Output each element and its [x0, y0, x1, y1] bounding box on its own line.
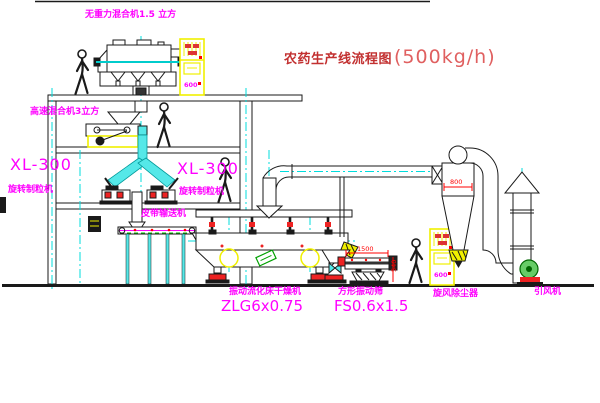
- label-dryer-model: ZLG6x0.75: [221, 299, 303, 314]
- title-capacity: (500kg/h): [394, 46, 496, 68]
- label-dryer-name: 振动流化床干燥机: [229, 288, 301, 297]
- screen-length-dim: 1500: [357, 245, 374, 253]
- control-cabinet-top: 600: [180, 39, 204, 95]
- granulator-left: [100, 186, 132, 204]
- label-granulator-name-mid: 旋转制粒机: [179, 188, 224, 197]
- label-high-speed-mixer: 高速混合机3立方: [30, 108, 99, 117]
- edge-equipment: [0, 197, 6, 213]
- label-screen-name: 方形振动筛: [338, 288, 383, 297]
- label-screen-model: FS0.6x1.5: [334, 299, 408, 314]
- person-figure: [410, 239, 423, 283]
- label-granulator-model-left: XL-300: [10, 157, 72, 173]
- person-figure: [76, 50, 89, 94]
- label-induced-fan: 引风机: [534, 288, 561, 297]
- person-figure: [158, 103, 171, 147]
- label-granulator-name-left: 旋转制粒机: [8, 186, 53, 195]
- drawing-title: 农药生产线流程图 (500kg/h): [284, 46, 496, 68]
- label-granulator-model-mid: XL-300: [177, 161, 239, 177]
- granulator-right: [145, 186, 177, 204]
- process-flow-drawing: 600 600: [0, 0, 600, 403]
- title-text: 农药生产线流程图: [284, 48, 392, 67]
- cyclone-diameter-dim: 800: [450, 178, 462, 186]
- label-gravity-mixer: 无重力混合机1.5 立方: [85, 11, 176, 20]
- label-cyclone: 旋风除尘器: [433, 290, 478, 299]
- belt-conveyor: [88, 216, 204, 284]
- screen-height-dim: 540: [390, 260, 398, 272]
- label-belt-conveyor: 皮带输送机: [141, 210, 186, 219]
- cabinet-readout: 600: [184, 81, 198, 89]
- cabinet-readout: 600: [434, 271, 448, 279]
- dryer-hangers: [209, 217, 331, 233]
